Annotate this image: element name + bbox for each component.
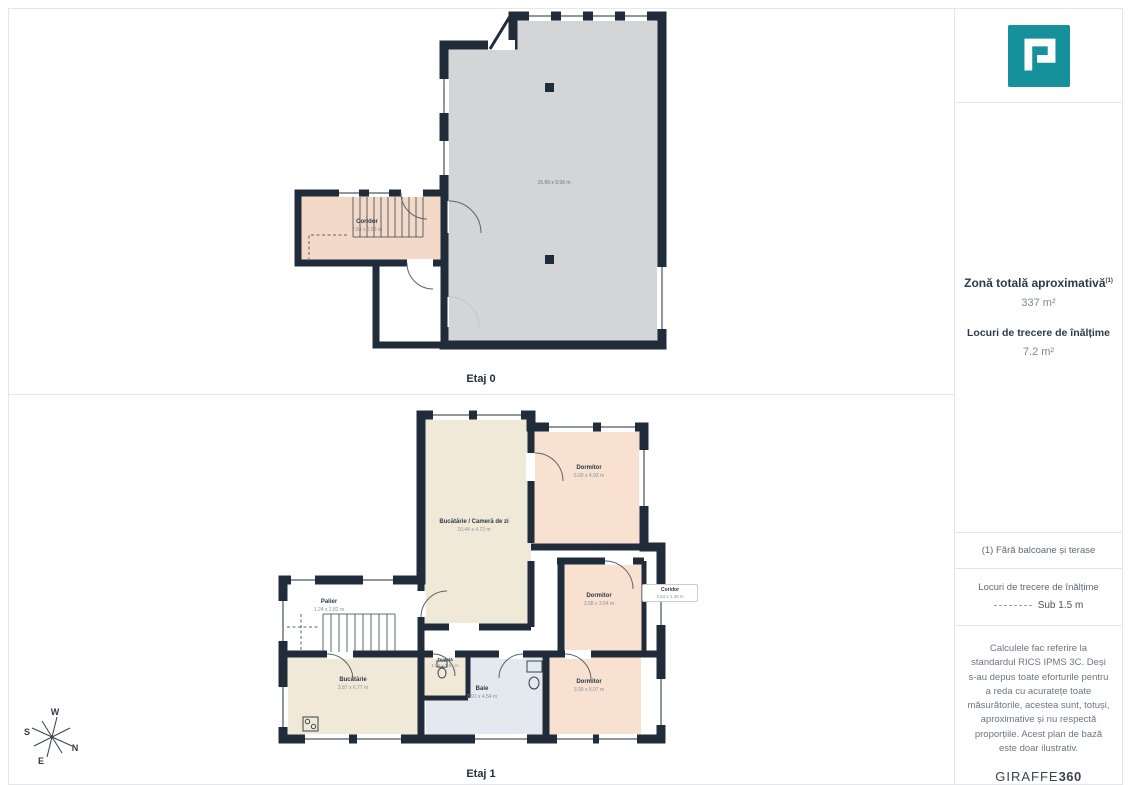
etaj1-floorplan-drawing <box>9 395 954 785</box>
compass-e: E <box>38 756 44 766</box>
giraffe360-wordmark: GIRAFFE360 <box>995 769 1082 784</box>
passage-value: 7.2 m² <box>1023 346 1054 358</box>
etaj0-floorplan-drawing <box>9 9 954 394</box>
footnote-text: (1) Fără balcoane și terase <box>982 545 1096 556</box>
total-area-title-text: Zonă totală aproximativă <box>964 276 1105 290</box>
document-frame: 15.99 x 9.96 m Coridor 2.84 x 6.68 m Eta… <box>8 8 1123 785</box>
room-dims: 3.54 x 1.40 m <box>646 594 694 600</box>
brand-bold: 360 <box>1059 769 1082 784</box>
coridor-label-box: Coridor 3.54 x 1.40 m <box>642 584 698 602</box>
floorplan-document: 15.99 x 9.96 m Coridor 2.84 x 6.68 m Eta… <box>0 0 1131 785</box>
legend-row: Sub 1.5 m <box>994 600 1084 611</box>
legend-section: Locuri de trecere de înălțime Sub 1.5 m <box>955 569 1122 626</box>
compass-icon: W S N E <box>17 701 89 773</box>
legend-title: Locuri de trecere de înălțime <box>978 582 1098 593</box>
total-area-superscript: (1) <box>1106 278 1113 284</box>
floorplans-column: 15.99 x 9.96 m Coridor 2.84 x 6.68 m Eta… <box>9 9 954 784</box>
floor-label-etaj0: Etaj 0 <box>421 373 541 385</box>
info-sidebar: Zonă totală aproximativă(1) 337 m² Locur… <box>954 9 1122 784</box>
brand-regular: GIRAFFE <box>995 769 1058 784</box>
dashed-line-icon <box>994 605 1032 606</box>
compass-w: W <box>51 707 60 717</box>
legend-value: Sub 1.5 m <box>1038 600 1084 611</box>
compass-s: S <box>24 727 30 737</box>
disclaimer-section: Calculele fac referire la standardul RIC… <box>955 626 1122 784</box>
passage-title: Locuri de trecere de înălțime <box>967 327 1110 339</box>
total-area-title: Zonă totală aproximativă(1) <box>964 276 1113 290</box>
giraffe360-logo <box>1008 25 1070 87</box>
etaj1-panel: Bucătărie / Cameră de zi 10.44 x 4.72 m … <box>9 395 954 784</box>
total-area-value: 337 m² <box>1021 297 1055 309</box>
area-summary-section: Zonă totală aproximativă(1) 337 m² Locur… <box>955 103 1122 533</box>
compass-n: N <box>72 743 79 753</box>
floor-label-etaj1: Etaj 1 <box>421 768 541 780</box>
logo-section <box>955 9 1122 103</box>
footnote-section: (1) Fără balcoane și terase <box>955 533 1122 569</box>
disclaimer-text: Calculele fac referire la standardul RIC… <box>967 642 1110 756</box>
etaj0-panel: 15.99 x 9.96 m Coridor 2.84 x 6.68 m Eta… <box>9 9 954 395</box>
